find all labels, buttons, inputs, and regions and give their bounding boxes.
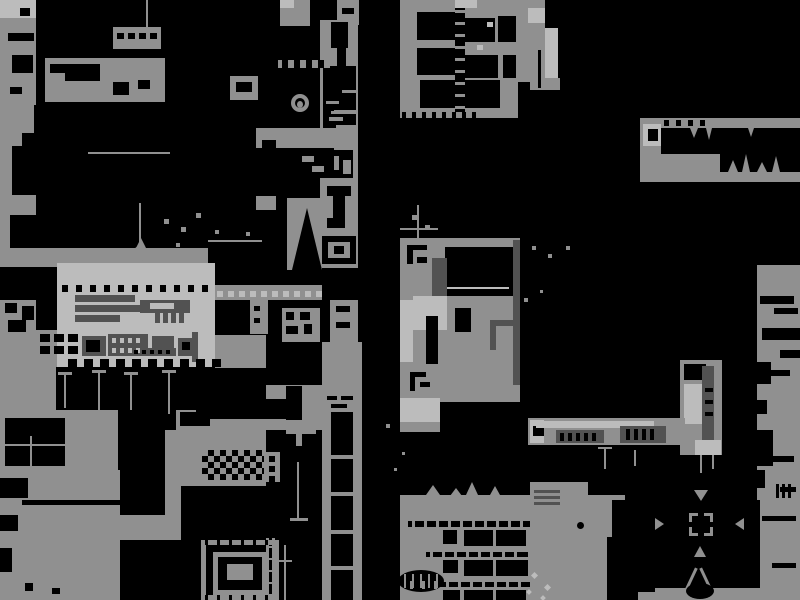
map-comb-tick: [188, 285, 194, 292]
map-terrain-rect: [704, 533, 713, 536]
map-terrain-rect: [215, 230, 219, 234]
map-comb-tick: [700, 142, 704, 150]
map-terrain-rect: [331, 455, 353, 459]
map-comb-tick: [705, 412, 713, 416]
map-terrain-rect: [0, 548, 12, 572]
map-arrow-up-icon: [728, 160, 738, 172]
map-terrain-rect: [331, 492, 353, 496]
map-terrain-rect: [402, 452, 405, 455]
map-comb-tick: [202, 285, 208, 292]
map-terrain-rect: [331, 412, 353, 600]
map-comb-tick: [318, 60, 324, 68]
map-comb-tick: [76, 285, 82, 292]
map-terrain-rect: [566, 246, 570, 250]
map-comb-tick: [514, 551, 517, 559]
map-arrow-up-icon: [757, 162, 767, 172]
map-comb-tick: [134, 350, 138, 354]
map-comb-tick: [239, 291, 245, 297]
map-comb-tick: [128, 338, 132, 343]
map-terrain-rect: [343, 160, 351, 174]
map-terrain-rect: [327, 218, 339, 228]
map-terrain-rect: [417, 257, 427, 263]
map-terrain-rect: [464, 560, 493, 576]
map-comb-tick: [283, 291, 289, 297]
map-comb-tick: [442, 551, 445, 559]
map-comb-tick: [432, 112, 436, 118]
map-terrain-rect: [772, 563, 796, 568]
map-terrain-rect: [5, 303, 17, 313]
map-comb-tick: [484, 520, 487, 529]
map-terrain-rect: [648, 129, 658, 141]
map-terrain-rect: [146, 0, 148, 28]
map-comb-tick: [205, 595, 208, 600]
map-terrain-rect: [598, 447, 612, 449]
map-terrain-rect: [407, 250, 413, 264]
map-comb-tick: [412, 112, 416, 118]
map-terrain-rect: [5, 444, 65, 446]
map-comb-tick: [282, 60, 288, 68]
map-comb-tick: [229, 540, 232, 545]
map-comb-tick: [139, 33, 146, 39]
map-terrain-rect: [52, 588, 60, 594]
map-terrain-rect: [487, 22, 493, 27]
map-comb-tick: [455, 34, 465, 37]
map-comb-tick: [253, 540, 256, 545]
map-terrain-rect: [342, 90, 358, 93]
map-terrain-rect: [124, 372, 138, 375]
map-terrain-rect: [0, 0, 36, 18]
map-terrain-rect: [152, 336, 174, 348]
map-terrain-rect: [0, 195, 36, 215]
map-comb-tick: [266, 582, 275, 584]
map-comb-tick: [490, 551, 493, 559]
map-arrow-up-icon: [490, 486, 500, 495]
map-comb-tick: [272, 291, 278, 297]
map-comb-tick: [253, 595, 256, 600]
map-comb-tick: [455, 58, 465, 61]
map-comb-tick: [494, 581, 497, 589]
map-terrain-rect: [12, 55, 33, 73]
map-comb-tick: [174, 285, 180, 292]
map-terrain-rect: [58, 372, 72, 375]
map-comb-tick: [269, 456, 275, 462]
map-comb-tick: [705, 388, 713, 392]
map-comb-tick: [84, 359, 93, 367]
map-terrain-rect: [262, 140, 276, 148]
map-arrow-down-icon: [706, 128, 712, 140]
map-comb-tick: [250, 291, 256, 297]
map-terrain-rect: [528, 8, 545, 23]
map-comb-tick: [120, 338, 124, 343]
map-terrain-rect: [0, 105, 34, 133]
map-terrain-rect: [341, 396, 353, 400]
map-comb-tick: [466, 551, 469, 559]
map-comb-tick: [265, 595, 268, 600]
map-terrain-rect: [477, 45, 483, 50]
map-terrain-rect: [64, 372, 66, 408]
map-terrain-rect: [420, 382, 430, 387]
map-terrain-rect: [417, 48, 455, 75]
map-comb-tick: [534, 490, 560, 493]
map-terrain-rect: [760, 296, 794, 304]
map-terrain-rect: [334, 246, 344, 254]
map-comb-tick: [446, 581, 449, 589]
map-terrain-rect: [410, 377, 415, 391]
map-terrain-rect: [400, 422, 440, 432]
map-comb-tick: [455, 22, 465, 25]
map-terrain-rect: [8, 33, 34, 41]
map-comb-tick: [412, 520, 415, 529]
map-comb-tick: [576, 433, 580, 441]
map-comb-tick: [164, 359, 173, 367]
map-terrain-rect: [465, 80, 500, 108]
map-comb-tick: [642, 429, 646, 440]
map-terrain-rect: [513, 240, 520, 385]
map-comb-tick: [518, 581, 521, 589]
map-comb-tick: [534, 502, 560, 505]
map-terrain-rect: [162, 370, 176, 373]
map-arrow-down-icon: [694, 490, 708, 501]
map-comb-tick: [782, 484, 785, 498]
map-comb-tick: [455, 94, 465, 97]
map-terrain-rect: [412, 215, 417, 220]
map-terrain-rect: [400, 228, 438, 230]
map-comb-tick: [776, 484, 779, 498]
map-comb-tick: [90, 285, 96, 292]
map-comb-tick: [458, 581, 461, 589]
map-terrain-rect: [757, 470, 765, 488]
map-terrain-rect: [98, 370, 100, 412]
map-terrain-rect: [386, 424, 390, 428]
map-comb-tick: [502, 551, 505, 559]
map-comb-tick: [117, 33, 124, 39]
map-comb-tick: [294, 291, 300, 297]
map-terrain-rect: [326, 101, 339, 104]
map-comb-tick: [166, 350, 170, 354]
map-terrain-rect: [331, 530, 353, 534]
map-terrain-rect: [88, 152, 170, 154]
map-terrain-rect: [176, 243, 180, 247]
map-comb-tick: [534, 496, 560, 499]
map-terrain-rect: [256, 196, 276, 210]
map-comb-tick: [241, 595, 244, 600]
map-comb-tick: [424, 520, 427, 529]
map-ellipse: [133, 246, 147, 261]
map-comb-tick: [269, 476, 275, 482]
map-terrain-rect: [297, 462, 299, 520]
map-terrain-rect: [780, 350, 800, 358]
map-comb-tick: [261, 291, 267, 297]
map-comb-tick: [716, 142, 720, 150]
map-terrain-rect: [138, 80, 150, 89]
map-terrain-rect: [5, 418, 65, 466]
map-comb-tick: [560, 433, 564, 441]
map-comb-tick: [171, 313, 176, 323]
map-terrain-rect: [213, 552, 218, 595]
map-comb-tick: [455, 82, 465, 85]
map-terrain-rect: [236, 82, 252, 92]
map-comb-tick: [788, 484, 791, 498]
map-terrain-rect: [201, 540, 206, 600]
map-comb-tick: [508, 520, 511, 529]
map-terrain-rect: [540, 290, 543, 293]
map-comb-tick: [442, 112, 446, 118]
map-comb-tick: [705, 400, 713, 404]
map-comb-tick: [217, 595, 220, 600]
map-terrain-rect: [464, 590, 493, 600]
map-comb-tick: [664, 120, 669, 126]
map-terrain-rect: [113, 82, 129, 95]
map-terrain-rect: [196, 213, 201, 218]
map-terrain-rect: [426, 316, 438, 364]
map-terrain-rect: [490, 320, 496, 350]
map-comb-tick: [146, 285, 152, 292]
map-comb-tick: [62, 285, 68, 292]
map-terrain-rect: [455, 0, 477, 8]
map-arrow-up-icon: [694, 546, 706, 557]
map-comb-tick: [68, 346, 78, 354]
map-terrain-rect: [710, 513, 713, 522]
map-comb-tick: [100, 359, 109, 367]
map-terrain-rect: [92, 370, 106, 373]
map-terrain-rect: [30, 436, 32, 466]
map-comb-tick: [626, 429, 630, 440]
map-terrain-rect: [286, 386, 302, 420]
map-comb-tick: [217, 540, 220, 545]
map-terrain-rect: [329, 117, 343, 121]
map-terrain-rect: [180, 412, 210, 426]
map-comb-tick: [455, 46, 465, 49]
map-comb-tick: [179, 313, 184, 323]
map-comb-tick: [306, 60, 312, 68]
map-comb-tick: [163, 313, 168, 323]
map-comb-tick: [402, 112, 406, 118]
map-comb-tick: [266, 570, 275, 572]
map-comb-tick: [128, 33, 135, 39]
map-comb-tick: [708, 142, 712, 150]
map-terrain-rect: [432, 258, 447, 296]
map-terrain-rect: [774, 308, 798, 314]
map-terrain-rect: [443, 530, 457, 544]
map-comb-tick: [650, 429, 654, 440]
map-terrain-rect: [168, 370, 170, 414]
map-terrain-rect: [447, 287, 509, 289]
map-terrain-rect: [294, 148, 334, 178]
map-terrain-rect: [10, 87, 22, 94]
map-comb-tick: [265, 540, 268, 545]
map-terrain-rect: [327, 186, 351, 196]
map-terrain-rect: [284, 545, 286, 600]
map-terrain-rect: [192, 332, 198, 362]
map-comb-tick: [158, 350, 162, 354]
map-terrain-rect: [65, 73, 100, 81]
map-terrain-rect: [208, 240, 262, 242]
map-comb-tick: [196, 359, 205, 367]
map-terrain-rect: [22, 500, 122, 505]
map-terrain-rect: [548, 254, 552, 258]
map-comb-tick: [436, 520, 439, 529]
map-comb-tick: [269, 466, 275, 472]
map-terrain-rect: [342, 8, 354, 14]
map-comb-tick: [241, 540, 244, 545]
map-terrain-rect: [0, 478, 28, 498]
map-comb-tick: [160, 285, 166, 292]
map-comb-tick: [478, 551, 481, 559]
map-terrain-rect: [300, 312, 310, 320]
map-terrain-rect: [164, 219, 169, 224]
map-comb-tick: [54, 346, 64, 354]
map-comb-tick: [116, 359, 125, 367]
map-terrain-rect: [0, 133, 22, 146]
map-rubble-checker: [202, 450, 264, 480]
map-comb-tick: [112, 348, 116, 353]
map-terrain-rect: [695, 440, 721, 455]
map-terrain-rect: [331, 404, 347, 408]
map-terrain-rect: [425, 225, 430, 230]
map-comb-tick: [40, 346, 50, 354]
map-comb-tick: [266, 558, 275, 560]
map-comb-tick: [592, 433, 596, 441]
map-arrow-up-icon: [292, 208, 322, 270]
map-comb-tick: [472, 112, 476, 118]
map-comb-tick: [40, 334, 50, 342]
map-terrain-rect: [689, 513, 692, 522]
map-comb-tick: [132, 285, 138, 292]
map-terrain-rect: [278, 560, 292, 562]
map-comb-tick: [155, 313, 160, 323]
map-comb-tick: [104, 285, 110, 292]
map-terrain-rect: [331, 22, 348, 48]
map-arrow-right-icon: [655, 518, 664, 530]
map-comb-tick: [142, 350, 146, 354]
map-terrain-rect: [181, 227, 186, 232]
map-terrain-rect: [689, 533, 698, 536]
map-terrain-rect: [757, 400, 767, 414]
map-terrain-rect: [130, 372, 132, 410]
map-terrain-rect: [336, 306, 350, 312]
map-comb-tick: [228, 291, 234, 297]
map-comb-tick: [506, 581, 509, 589]
map-terrain-rect: [327, 396, 337, 400]
map-comb-tick: [455, 10, 465, 13]
map-terrain-rect: [213, 552, 267, 557]
map-terrain-rect: [503, 55, 516, 78]
map-comb-tick: [54, 334, 64, 342]
map-terrain-rect: [336, 125, 358, 129]
map-terrain-rect: [464, 530, 493, 546]
map-terrain-rect: [312, 166, 324, 172]
map-terrain-rect: [118, 430, 165, 515]
map-terrain-rect: [400, 300, 413, 362]
map-terrain-rect: [213, 590, 267, 595]
map-comb-tick: [454, 551, 457, 559]
map-comb-tick: [420, 574, 422, 588]
map-terrain-rect: [524, 298, 528, 302]
map-terrain-rect: [443, 590, 460, 600]
map-terrain-rect: [20, 8, 30, 16]
map-terrain-rect: [75, 305, 150, 312]
map-terrain-rect: [465, 55, 498, 78]
map-comb-tick: [430, 551, 433, 559]
map-terrain-rect: [604, 447, 606, 469]
map-comb-tick: [150, 350, 154, 354]
map-terrain-rect: [334, 110, 356, 114]
map-comb-tick: [584, 433, 588, 441]
map-comb-tick: [455, 106, 465, 109]
map-terrain-rect: [296, 434, 302, 446]
map-terrain-rect: [75, 295, 135, 302]
map-comb-tick: [112, 338, 116, 343]
map-arrow-up-icon: [426, 485, 440, 495]
map-comb-tick: [412, 574, 414, 588]
map-comb-tick: [150, 33, 157, 39]
map-terrain-rect: [336, 322, 350, 328]
map-comb-tick: [422, 581, 425, 589]
map-terrain-rect: [762, 328, 800, 340]
map-ellipse: [686, 583, 714, 599]
map-terrain-rect: [638, 592, 658, 600]
map-comb-tick: [132, 359, 141, 367]
map-comb-tick: [305, 291, 311, 297]
map-comb-tick: [422, 112, 426, 118]
map-terrain-rect: [496, 530, 526, 546]
map-comb-tick: [436, 574, 438, 588]
map-terrain-rect: [0, 215, 10, 250]
map-comb-tick: [452, 112, 456, 118]
map-terrain-rect: [28, 267, 58, 300]
map-terrain-rect: [75, 315, 120, 322]
map-ring: [291, 94, 309, 112]
map-terrain-rect: [417, 12, 455, 40]
map-comb-tick: [212, 359, 221, 367]
map-comb-tick: [120, 348, 124, 353]
map-terrain-rect: [507, 95, 518, 108]
map-comb-tick: [520, 520, 523, 529]
map-comb-tick: [568, 433, 572, 441]
map-arrow-up-icon: [450, 488, 462, 496]
map-comb-tick: [472, 520, 475, 529]
map-terrain-rect: [280, 0, 294, 8]
map-terrain-rect: [0, 146, 12, 200]
map-comb-tick: [229, 595, 232, 600]
map-terrain-rect: [246, 232, 250, 236]
map-comb-tick: [470, 581, 473, 589]
map-comb-tick: [724, 142, 728, 150]
map-terrain-rect: [280, 196, 287, 270]
map-comb-tick: [404, 574, 406, 588]
map-terrain-rect: [661, 128, 800, 154]
map-terrain-rect: [532, 246, 536, 250]
game-map: [0, 0, 800, 600]
map-comb-tick: [462, 112, 466, 118]
map-comb-tick: [68, 359, 77, 367]
map-terrain-rect: [455, 308, 471, 332]
map-terrain-rect: [118, 515, 180, 540]
map-comb-tick: [217, 291, 223, 297]
map-terrain-rect: [420, 80, 455, 108]
map-comb-tick: [448, 520, 451, 529]
map-terrain-rect: [496, 560, 528, 576]
map-terrain-rect: [286, 326, 298, 334]
map-comb-tick: [148, 359, 157, 367]
map-terrain-rect: [700, 455, 702, 473]
map-terrain-rect: [302, 156, 314, 162]
map-terrain-rect: [400, 398, 440, 422]
map-arrow-up-icon: [136, 238, 146, 248]
map-terrain-rect: [394, 468, 397, 471]
map-terrain-rect: [86, 340, 100, 352]
map-terrain-rect: [331, 566, 353, 570]
